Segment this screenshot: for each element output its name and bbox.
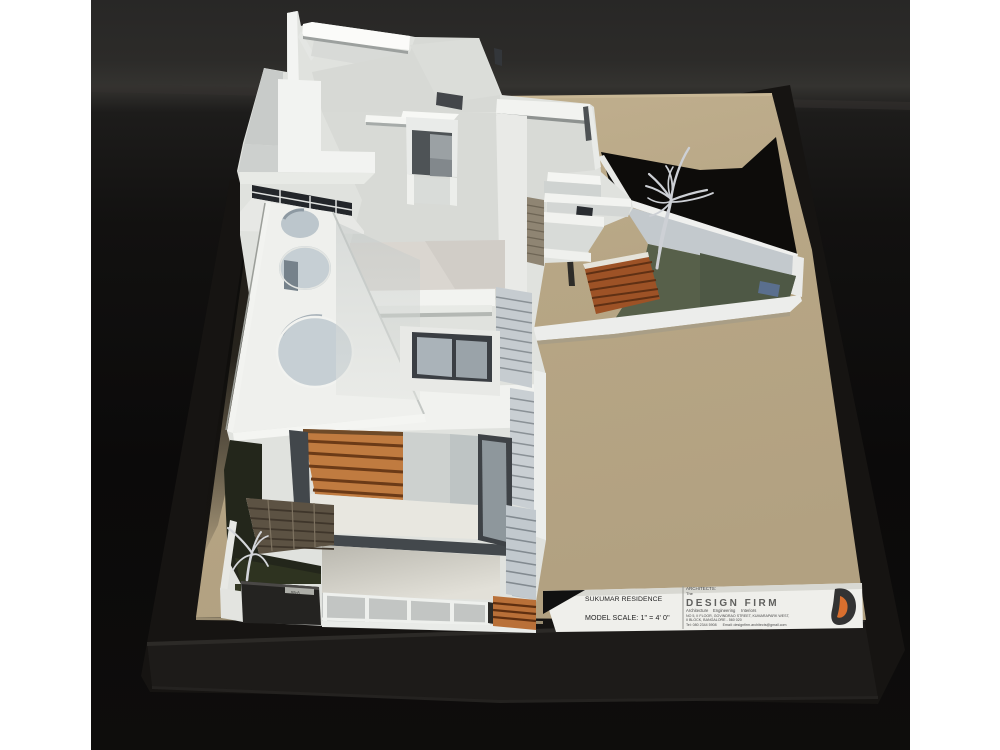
svg-text:The: The: [686, 591, 694, 596]
svg-text:Architecture Engineering: Architecture Engineering Interiors: [686, 608, 756, 613]
svg-text:II BLOCK, BANGALORE - 560 020: II BLOCK, BANGALORE - 560 020: [686, 618, 742, 622]
svg-text:55-A: 55-A: [291, 590, 300, 595]
svg-text:SUKUMAR RESIDENCE: SUKUMAR RESIDENCE: [585, 596, 663, 603]
svg-text:Tel: 080 2344 5908 Email:: Tel: 080 2344 5908 Email: designfirm.arc…: [686, 623, 787, 627]
svg-text:MODEL SCALE: 1" = 4' 0": MODEL SCALE: 1" = 4' 0": [585, 614, 670, 622]
